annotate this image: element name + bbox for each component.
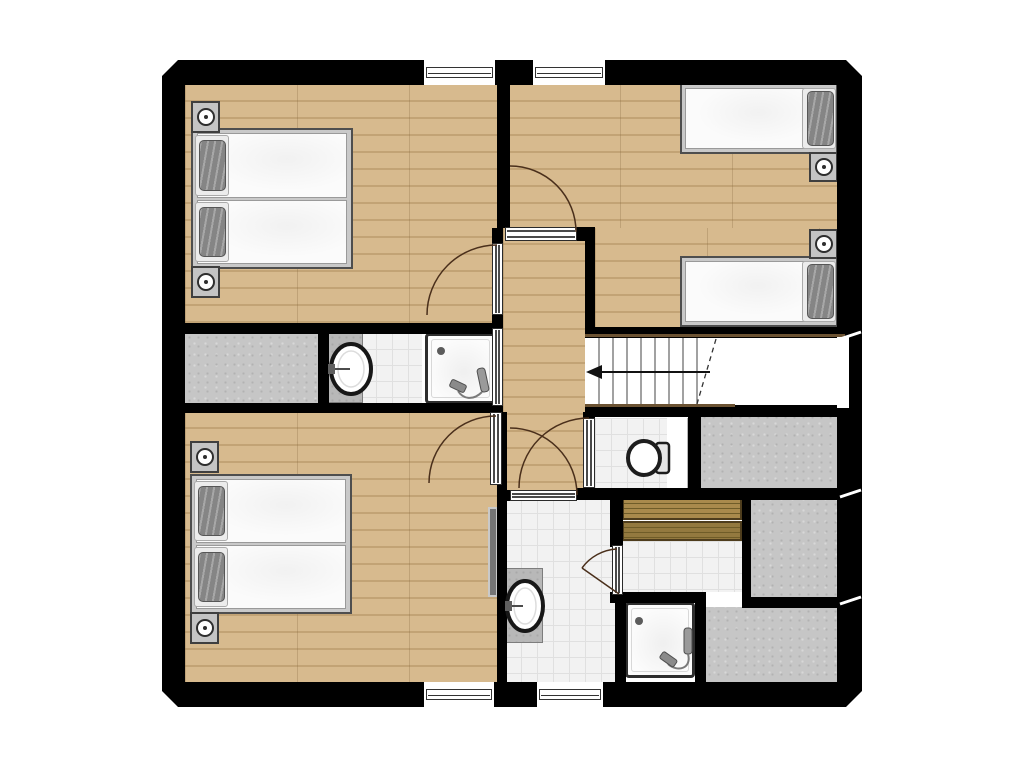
mattress — [685, 261, 807, 322]
stair-landing — [837, 337, 849, 408]
room-storage-right-middle — [750, 500, 837, 597]
room-storage-left — [185, 333, 318, 403]
wall-outer-bottom — [162, 682, 862, 707]
lamp-icon — [815, 158, 833, 176]
room-staircase — [585, 337, 848, 408]
double-bed-top-left — [191, 128, 353, 269]
lamp-icon — [197, 108, 215, 126]
door-bathroom-middle-left — [492, 328, 503, 406]
room-hallway — [503, 228, 585, 490]
nightstand — [190, 612, 219, 644]
wall — [585, 327, 862, 338]
wall-outer-left — [162, 60, 185, 707]
floor-plan — [0, 0, 1024, 768]
room-storage-right-bottom — [705, 607, 837, 682]
vanity-counter-middle-left — [328, 333, 363, 403]
door-bedroom-bottom-left — [490, 412, 502, 485]
room-storage-right-top — [700, 413, 837, 490]
pillow — [807, 91, 834, 146]
single-bed-top-right-2 — [680, 256, 838, 327]
wall — [185, 323, 503, 334]
shower-tray-middle-left — [425, 333, 496, 404]
sauna-bench-lower — [622, 521, 742, 541]
pillow — [807, 264, 834, 319]
nightstand — [809, 152, 838, 182]
door-bathroom-bottom — [510, 490, 577, 501]
wall — [742, 497, 751, 599]
pillow — [199, 140, 226, 191]
nightstand — [190, 441, 219, 473]
wall — [318, 333, 329, 403]
pillow — [198, 486, 225, 536]
wall — [585, 405, 862, 417]
door-wc — [583, 418, 595, 488]
nightstand — [191, 266, 220, 298]
wall-outer-top — [162, 60, 862, 85]
door-bedroom-top-left — [492, 243, 503, 315]
lamp-icon — [197, 273, 215, 291]
pillow — [198, 552, 225, 602]
single-bed-top-right-1 — [680, 83, 838, 154]
wall — [688, 413, 701, 490]
wall — [695, 592, 706, 684]
window-top-right — [533, 60, 605, 85]
shower-tray-bottom — [625, 602, 695, 678]
wall — [615, 600, 626, 682]
wc-cistern-wall — [667, 418, 688, 488]
sauna-bench-upper — [622, 497, 742, 520]
nightstand — [191, 101, 220, 133]
lamp-icon — [196, 619, 214, 637]
door-bedroom-top-right — [505, 227, 577, 241]
nightstand — [809, 229, 838, 259]
lamp-icon — [815, 235, 833, 253]
mattress — [685, 88, 807, 149]
door-sauna — [612, 545, 623, 595]
wall — [742, 597, 838, 608]
wall — [497, 490, 511, 501]
wall — [185, 403, 503, 413]
window-bottom-right — [537, 682, 603, 707]
lamp-icon — [196, 448, 214, 466]
vanity-counter-bottom — [505, 568, 543, 643]
window-bottom-left — [424, 682, 494, 707]
window-top-left — [424, 60, 495, 85]
wall — [610, 497, 623, 547]
wall — [585, 238, 595, 338]
double-bed-bottom-left — [190, 474, 352, 614]
pillow — [199, 207, 226, 257]
wall — [497, 60, 510, 228]
room-sauna-floor — [622, 541, 742, 592]
